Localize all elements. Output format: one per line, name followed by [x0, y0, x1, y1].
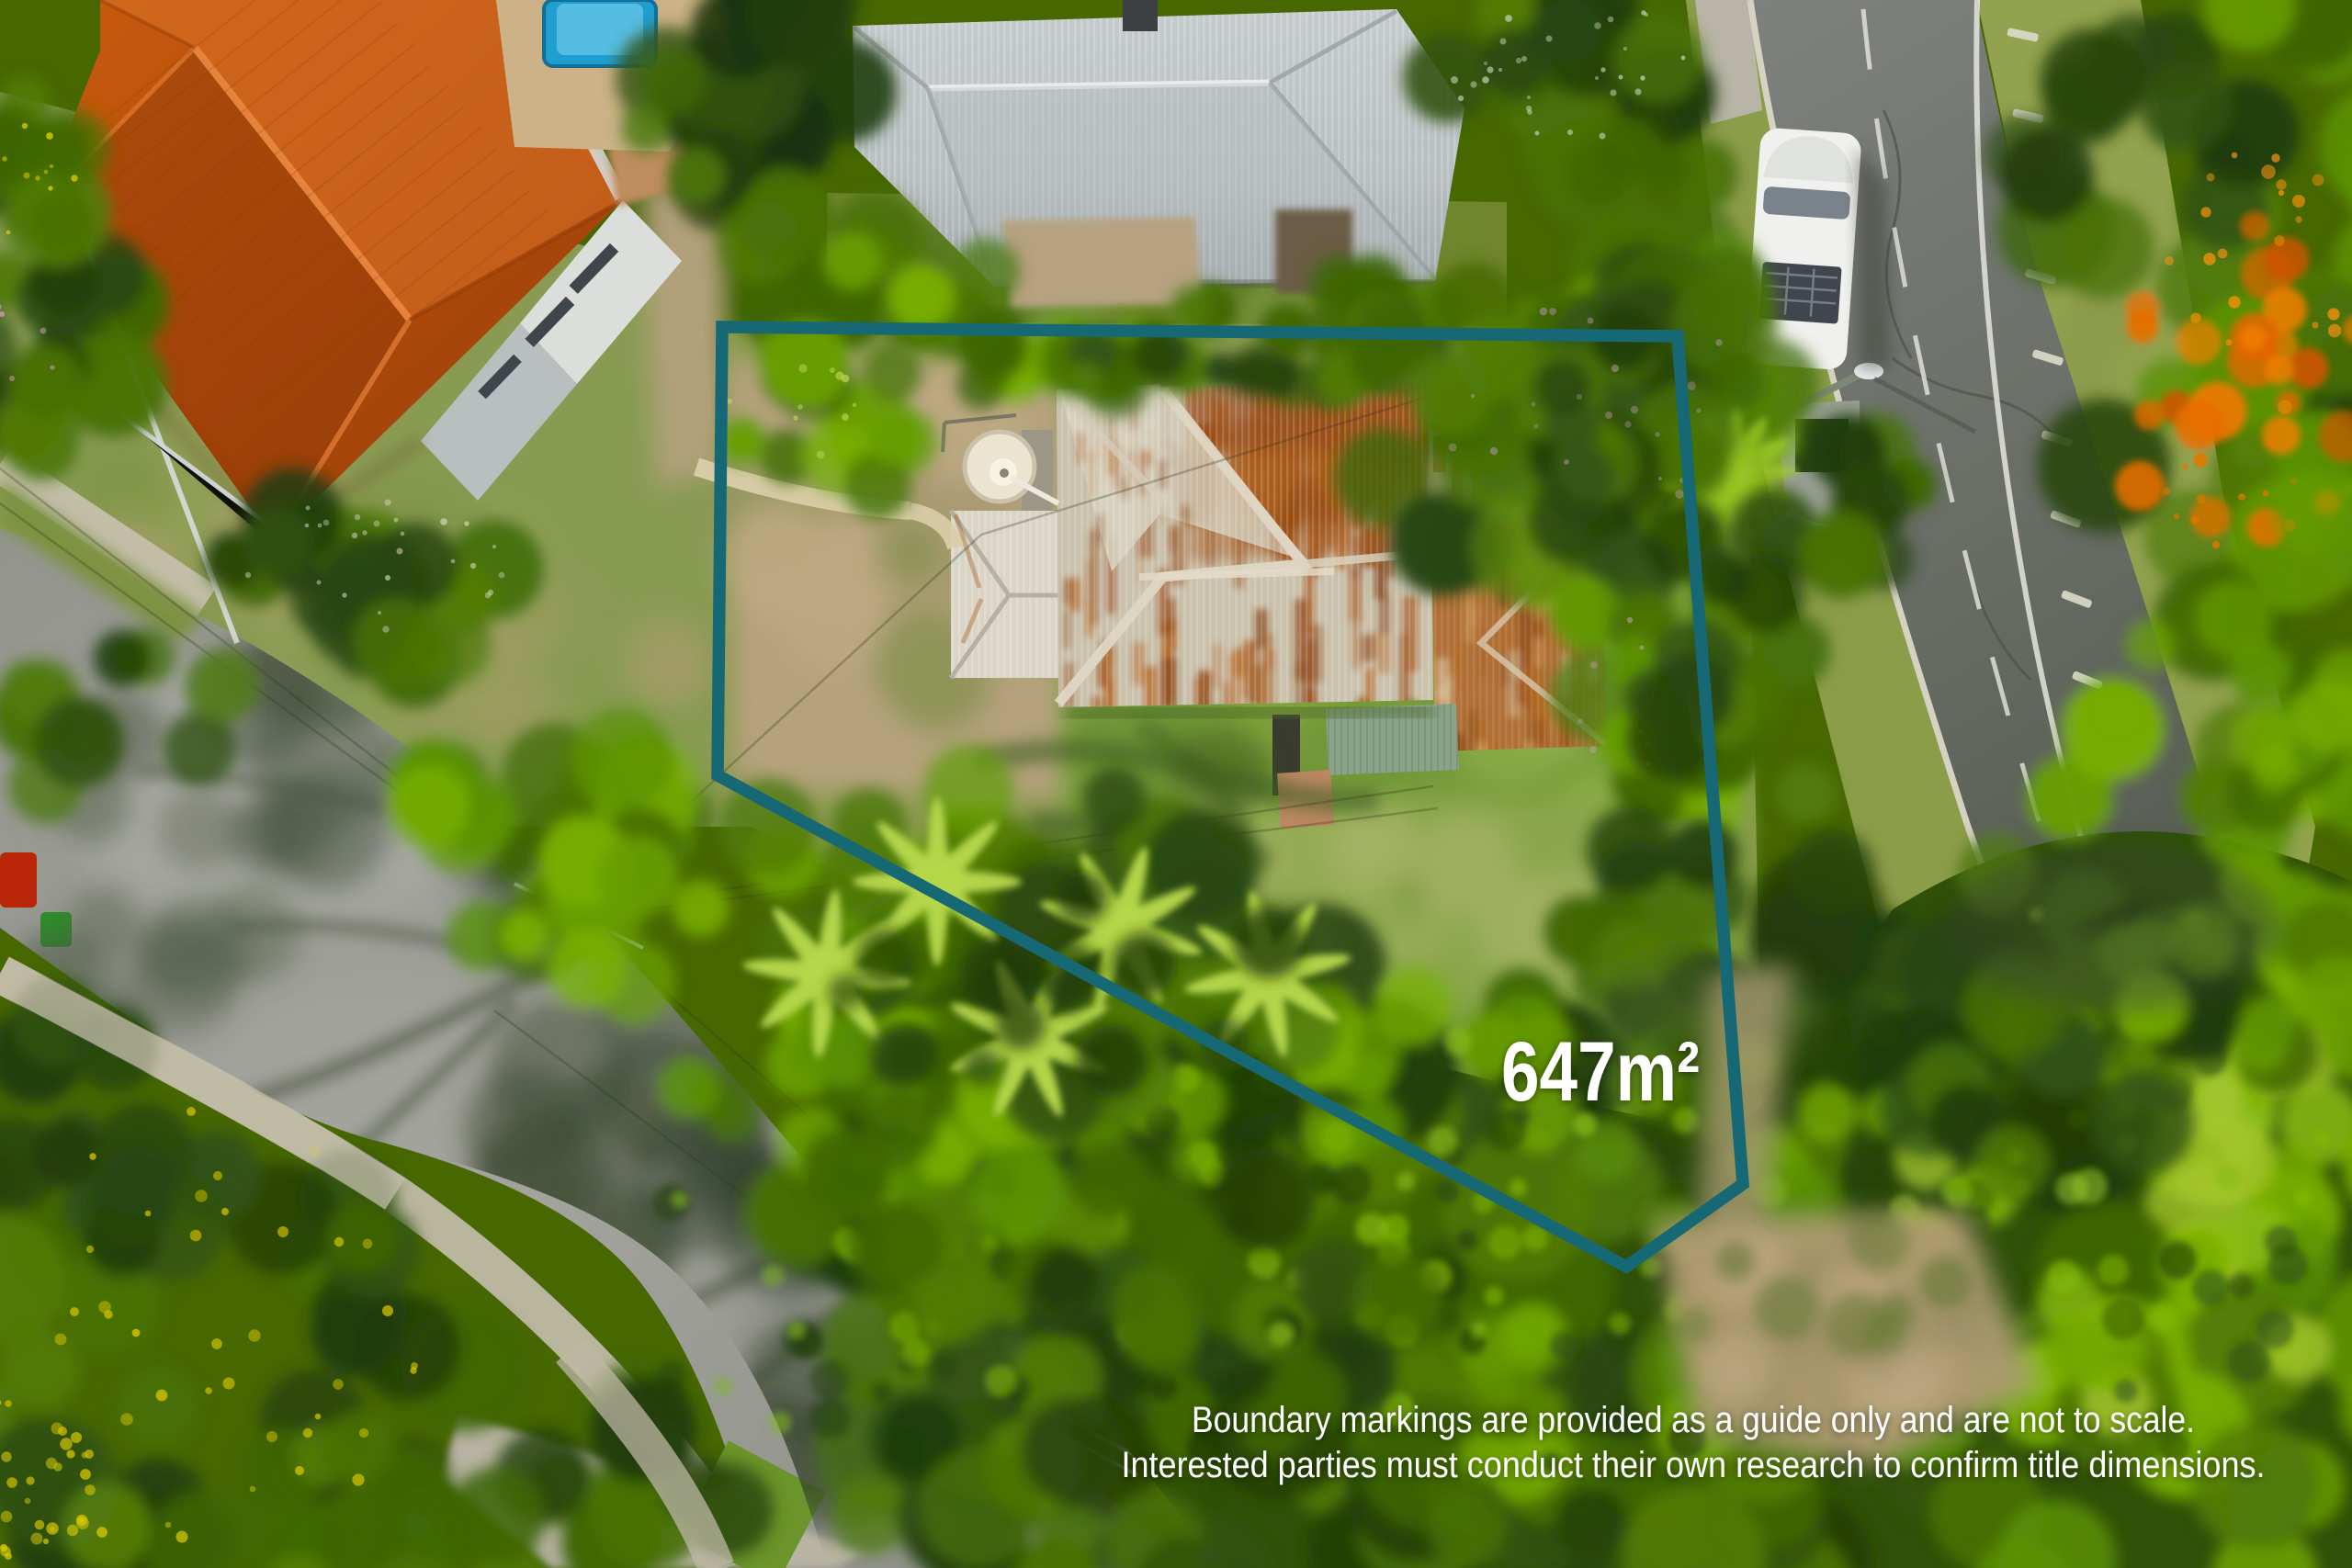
svg-text:Interested parties must conduc: Interested parties must conduct their ow… [1122, 1445, 2266, 1485]
svg-text:Boundary markings are provided: Boundary markings are provided as a guid… [1192, 1400, 2195, 1440]
svg-text:647m²: 647m² [1501, 1025, 1700, 1119]
